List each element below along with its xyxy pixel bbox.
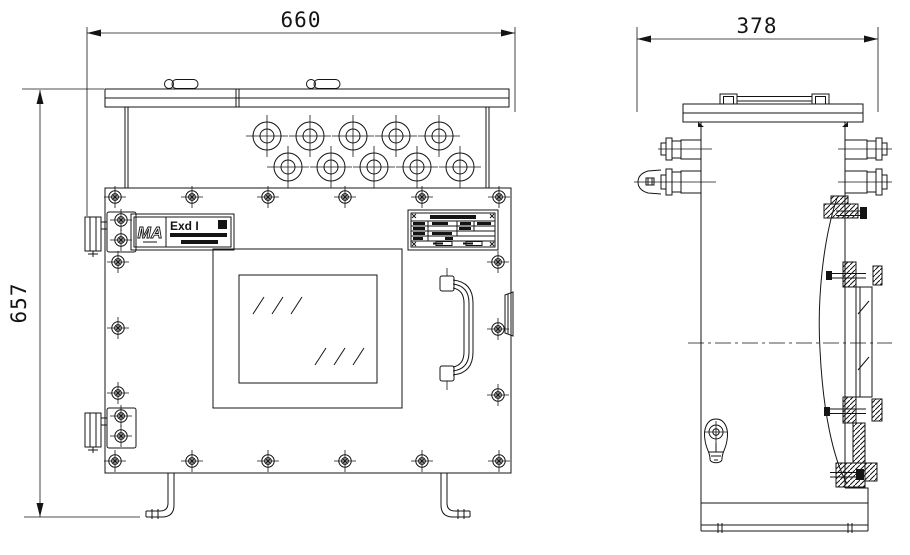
mounting-foot-right [441,473,470,519]
lid-latch-pin-left [165,80,199,89]
arrowhead-top [37,90,44,104]
cable-gland [332,115,374,157]
illegible-text-bar [181,240,218,244]
gland-stub-right-bottom [838,169,892,195]
arrowhead-right [864,36,878,43]
dimension-overall-height: 657 [7,89,140,517]
top-lid-rail [105,89,509,107]
ma-logo: MA [138,225,163,242]
drawing-canvas: 660 657 378 [0,0,910,555]
bolt [181,450,203,472]
dimension-overall-depth: 378 [637,14,878,112]
bolt [110,425,132,447]
door-handle [440,268,473,390]
cable-gland [418,115,460,157]
hinge-bottom [85,405,136,453]
gland-plate-recess [125,107,489,188]
dimension-width-value: 660 [281,8,322,32]
lid-latch-pin-right [307,80,341,89]
bolt [487,318,509,340]
arrowhead-right [501,30,515,37]
arrowhead-left [637,36,651,43]
bolt [487,251,509,273]
sight-glass-section [824,262,882,487]
gland-stub-left-bottom [634,169,716,195]
side-lid [683,104,863,127]
cable-gland [439,146,481,188]
cable-gland [246,115,288,157]
cable-gland [289,115,331,157]
illegible-marking-glyph [218,220,227,229]
bolt [110,229,132,251]
cable-gland [267,146,309,188]
bolt [411,186,433,208]
bolt [107,251,129,273]
bolt [107,382,129,404]
cable-gland [310,146,352,188]
bolt [411,450,433,472]
bolt [104,450,126,472]
rating-nameplate [408,210,498,250]
lid-carry-handle [720,94,829,104]
glass-marks [253,297,364,365]
enclosure-body-profile [701,122,845,531]
bolt [107,317,129,339]
arrowhead-left [87,30,101,37]
bolt [488,450,510,472]
door-profile-curve [819,198,847,484]
ground-terminal [704,419,727,463]
side-view [634,94,892,533]
bolt [487,384,509,406]
inspection-window [213,249,402,408]
gland-stub-right-top [838,138,892,160]
ma-certification-plate: MA Exd I [131,214,234,250]
flange-bolts [104,186,510,472]
ex-marking-label: Exd I [170,219,199,233]
nameplate-title-bar [430,215,476,219]
hinge-top [85,209,136,257]
cable-gland [353,146,395,188]
dimension-overall-width: 660 [87,8,515,216]
dimension-height-value: 657 [7,283,31,324]
cable-gland [396,146,438,188]
bolt [104,186,126,208]
glass-pane [856,287,872,397]
technical-drawing: 660 657 378 [0,0,910,555]
front-view: MA Exd I [85,80,513,520]
gland-stub-left-top [658,138,712,160]
bolt [257,450,279,472]
bolt [334,186,356,208]
bolt [334,450,356,472]
cable-gland-field [246,115,481,188]
window-glass [239,275,377,383]
mounting-foot-left [146,473,174,519]
bolt [257,186,279,208]
bolt [488,186,510,208]
base-plate [701,488,868,533]
illegible-text-bar [170,233,227,237]
bolt [181,186,203,208]
arrowhead-bottom [37,503,44,517]
cable-gland [375,115,417,157]
dimension-depth-value: 378 [737,14,778,38]
